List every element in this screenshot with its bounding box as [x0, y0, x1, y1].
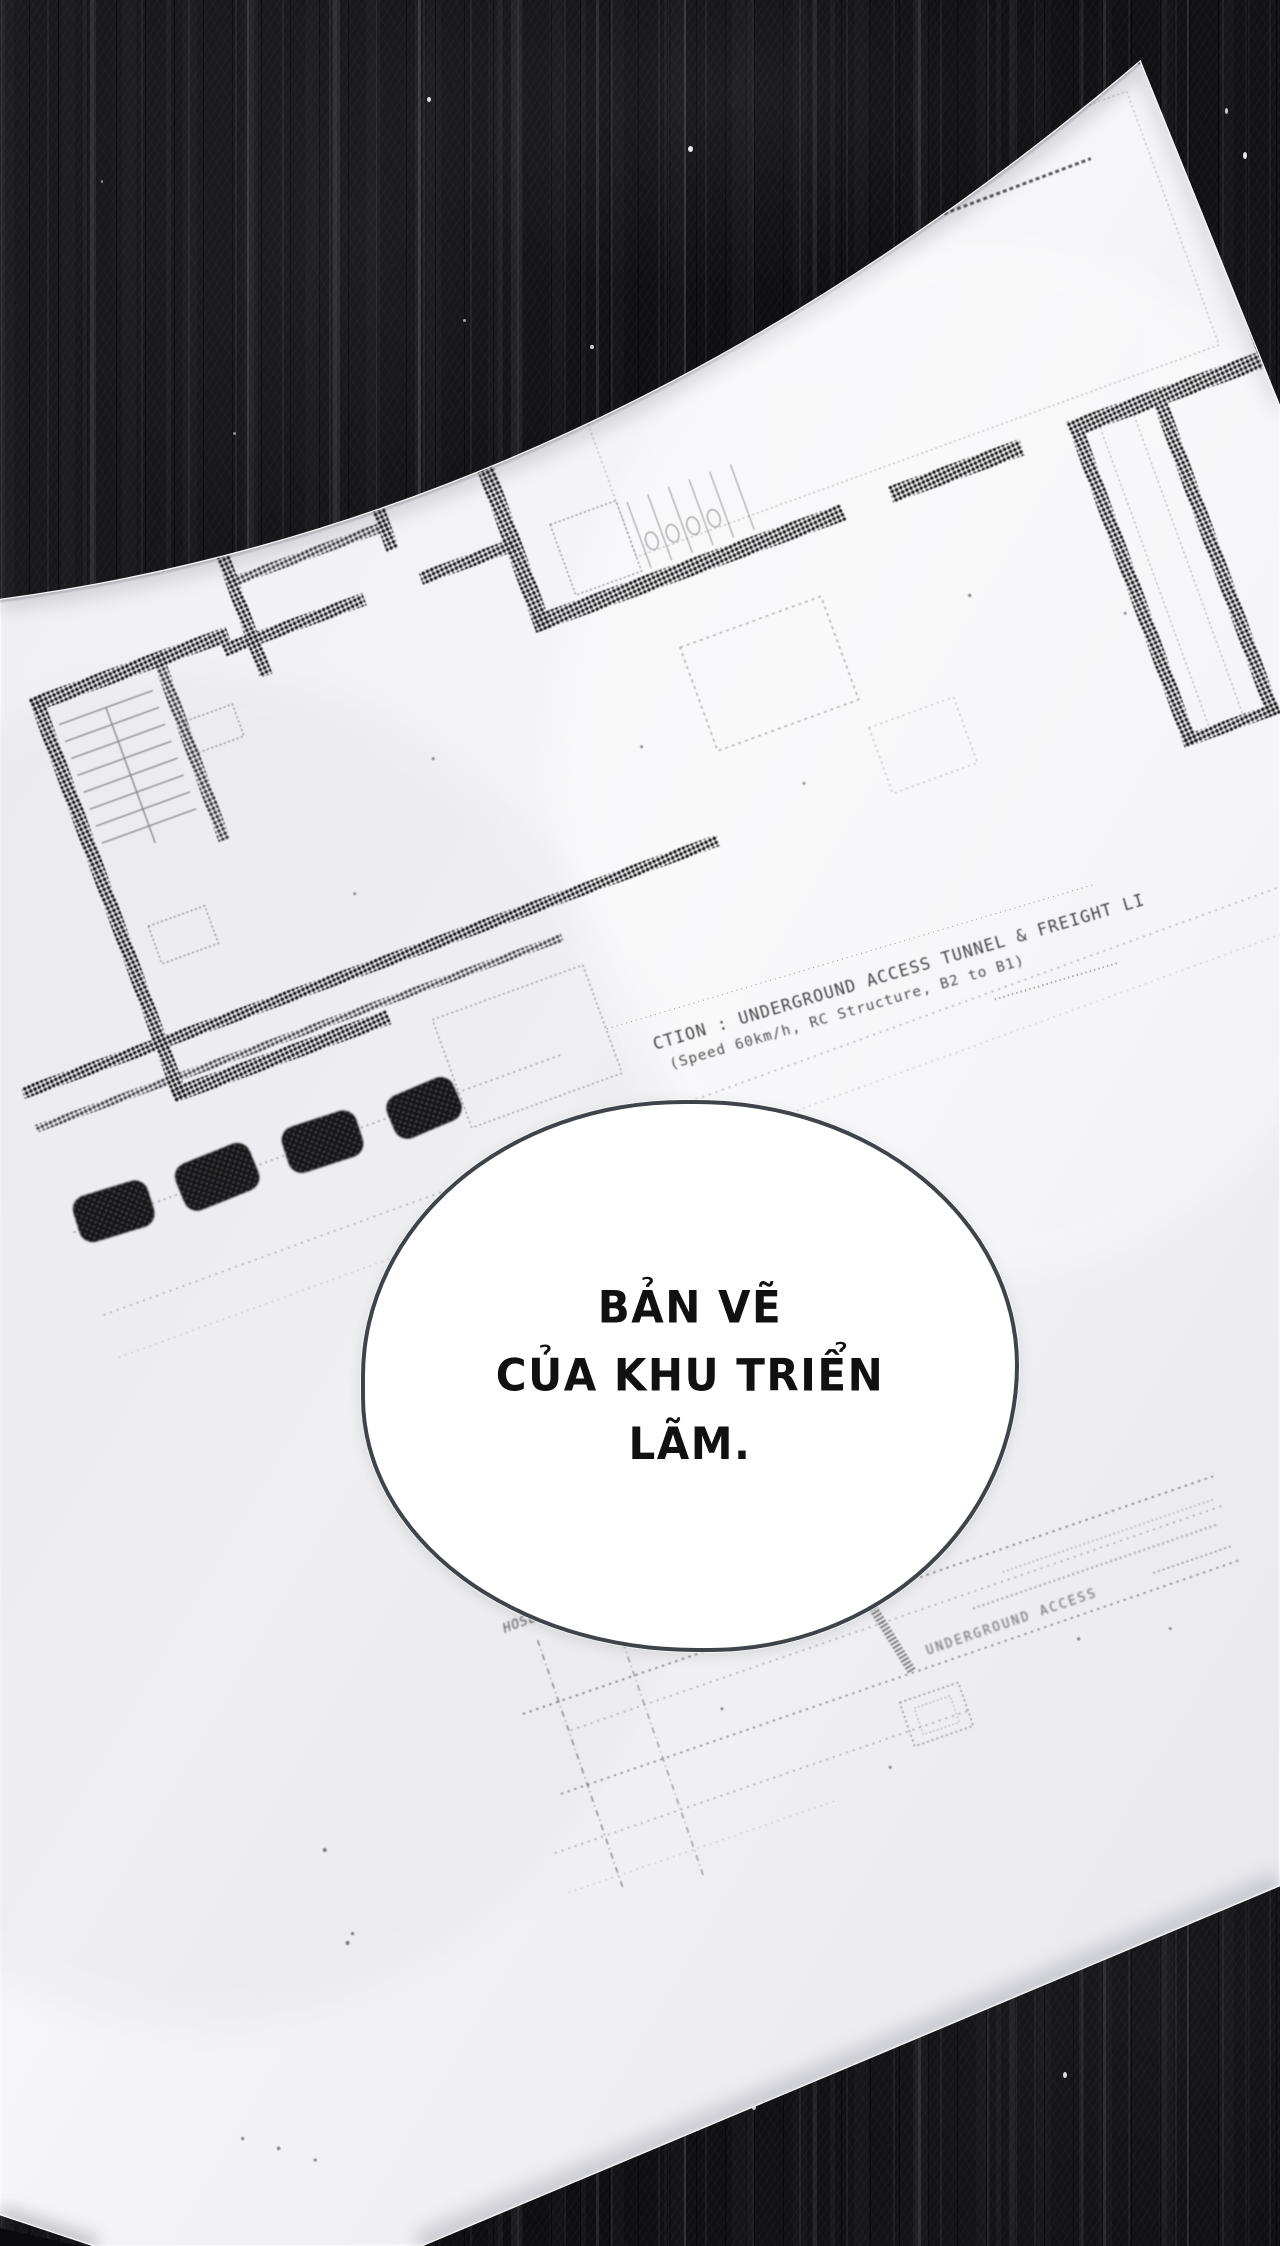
speech-bubble-text: BẢN VẼ CỦA KHU TRIỂN LÃM.: [496, 1273, 884, 1478]
speech-bubble: BẢN VẼ CỦA KHU TRIỂN LÃM.: [361, 1100, 1019, 1652]
bubble-line-2: CỦA KHU TRIỂN: [496, 1342, 884, 1410]
bubble-line-1: BẢN VẼ: [496, 1273, 884, 1341]
comic-panel: CTION : UNDERGROUND ACCESS TUNNEL & FREI…: [0, 0, 1280, 2246]
bubble-line-3: LÃM.: [496, 1410, 884, 1478]
